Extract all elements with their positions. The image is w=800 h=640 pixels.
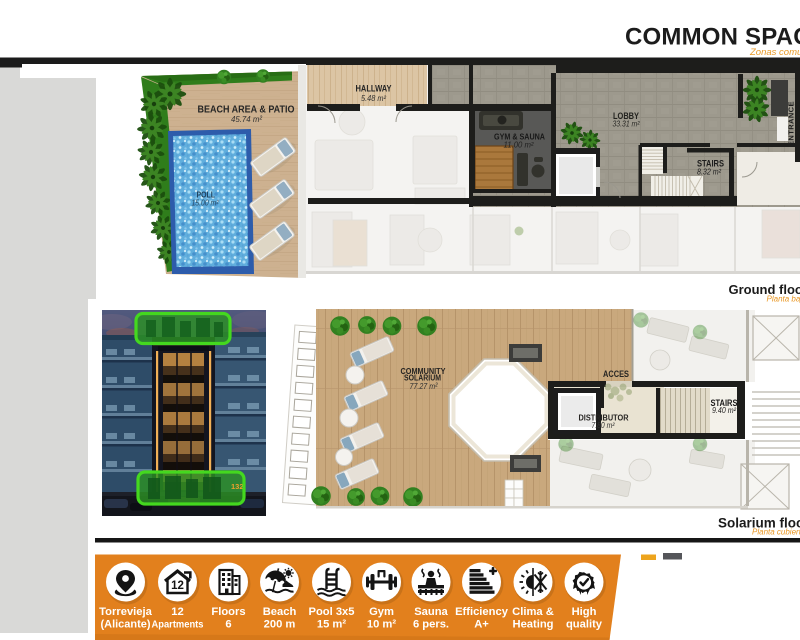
svg-text:Gym: Gym <box>369 606 394 618</box>
svg-text:Pool 3x5: Pool 3x5 <box>308 606 354 618</box>
svg-text:12: 12 <box>171 580 184 592</box>
svg-text:ACCES: ACCES <box>603 369 629 379</box>
svg-text:6 pers.: 6 pers. <box>413 619 449 631</box>
svg-text:Planta baja: Planta baja <box>767 295 800 304</box>
svg-text:10 m²: 10 m² <box>367 619 396 631</box>
svg-text:5.48 m²: 5.48 m² <box>361 93 387 103</box>
svg-text:ENTRANCE: ENTRANCE <box>787 101 796 146</box>
svg-text:Apartments: Apartments <box>152 620 204 631</box>
svg-text:9.40 m²: 9.40 m² <box>712 406 736 415</box>
svg-text:High: High <box>572 606 597 618</box>
svg-text:7.80 m²: 7.80 m² <box>592 421 615 430</box>
svg-text:Sauna: Sauna <box>414 606 448 618</box>
svg-text:12: 12 <box>171 606 183 618</box>
svg-text:200 m: 200 m <box>264 619 296 631</box>
svg-text:Torrevieja: Torrevieja <box>99 606 152 618</box>
svg-text:Zonas comunes: Zonas comunes <box>749 47 800 58</box>
svg-text:Clima &: Clima & <box>512 606 554 618</box>
svg-text:6: 6 <box>225 619 231 631</box>
svg-text:132: 132 <box>231 482 244 491</box>
svg-text:Efficiency: Efficiency <box>455 606 509 618</box>
svg-text:quality: quality <box>566 619 603 631</box>
svg-text:Heating: Heating <box>512 619 553 631</box>
svg-text:A+: A+ <box>474 619 489 631</box>
svg-text:Beach: Beach <box>263 606 297 618</box>
svg-text:15 m²: 15 m² <box>317 619 346 631</box>
svg-text:Planta cubierta: Planta cubierta <box>752 528 800 537</box>
svg-text:11.00 m²: 11.00 m² <box>504 141 534 150</box>
svg-text:15.00 m²: 15.00 m² <box>192 199 219 208</box>
svg-text:45.74 m²: 45.74 m² <box>231 114 263 124</box>
svg-text:77.27 m²: 77.27 m² <box>410 381 439 391</box>
svg-text:(Alicante): (Alicante) <box>101 619 151 631</box>
svg-text:Floors: Floors <box>211 606 245 618</box>
svg-text:8.32 m²: 8.32 m² <box>697 168 721 177</box>
svg-text:33.31 m²: 33.31 m² <box>613 120 640 129</box>
